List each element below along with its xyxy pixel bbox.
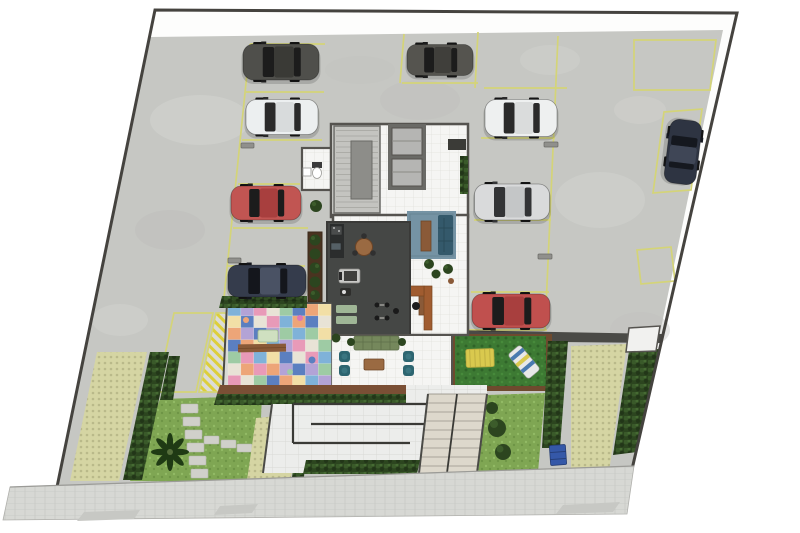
kids-table (258, 330, 278, 342)
car-mirror (261, 80, 266, 83)
exercise-bike (340, 288, 351, 296)
sink (303, 168, 311, 176)
lobby-sofa (438, 215, 453, 255)
white-gate-panel (626, 326, 660, 352)
playroom-tile (318, 352, 331, 364)
site-plan-rendering (0, 0, 800, 533)
car-rear-glass (294, 103, 300, 131)
car-silver-right (473, 182, 551, 225)
car-darkgray-top-mid (406, 42, 475, 80)
playroom-tile (318, 328, 331, 340)
car-mirror (263, 135, 268, 138)
car-rear-glass (533, 103, 539, 133)
playroom-tile (305, 340, 318, 352)
car-mirror (423, 76, 428, 79)
car-red-right (471, 292, 552, 333)
kitchen-sink (331, 243, 341, 250)
car-windshield (504, 103, 515, 134)
gym-mat-2 (336, 316, 357, 324)
car-mirror (423, 42, 428, 45)
green-sofa (354, 336, 399, 350)
car-roof (274, 47, 294, 78)
stove (331, 226, 342, 235)
car-rear-glass (278, 190, 284, 217)
car-roof (434, 47, 451, 73)
toilet (312, 162, 322, 179)
car-rear-glass (524, 298, 531, 325)
playroom-tile (241, 352, 254, 364)
playroom-tile (241, 328, 254, 340)
work-desk-vertical (424, 286, 432, 330)
gym-mat-1 (336, 305, 357, 313)
dumpster (549, 444, 566, 465)
hall-plant-leaf (312, 202, 316, 206)
car-roof (260, 189, 278, 218)
car-red-left (230, 184, 303, 225)
car-mirror (263, 97, 268, 100)
playroom-tile (228, 352, 241, 364)
desk-chair (412, 302, 420, 310)
car-windshield (249, 189, 260, 217)
car-mirror (491, 328, 496, 331)
playroom-tile (267, 352, 280, 364)
car-roof (505, 187, 525, 218)
car-mirror (502, 137, 507, 140)
hedge-strip-sidewalk (303, 460, 420, 474)
coffee-table (364, 359, 384, 370)
car-roof (515, 102, 534, 134)
car-mirror (261, 42, 266, 45)
car-mirror (247, 263, 252, 266)
elevator-bank (388, 124, 426, 190)
palm-tree (151, 433, 189, 471)
car-mirror (493, 220, 498, 223)
car-roof (276, 102, 295, 132)
playroom-tile (293, 340, 306, 352)
car-rear-glass (280, 269, 287, 294)
car-windshield (265, 103, 276, 132)
playroom-tile (228, 364, 241, 376)
stair-core (334, 126, 380, 213)
car-roof (260, 268, 280, 295)
car-darkgray-left-top (242, 42, 321, 85)
car-mirror (502, 97, 507, 100)
car-navy-left (227, 263, 308, 302)
car-roof (668, 145, 697, 165)
playroom-tile (293, 364, 306, 376)
car-rear-glass (451, 48, 457, 72)
car-windshield (263, 47, 274, 77)
playroom-tile (254, 364, 267, 376)
playroom-tile (305, 328, 318, 340)
car-roof (504, 297, 524, 326)
playroom-tile (293, 352, 306, 364)
playroom-tile (267, 316, 280, 328)
playroom-tile (318, 340, 331, 352)
stove-burner (338, 230, 340, 232)
car-mirror (248, 220, 253, 223)
car-windshield (494, 187, 505, 217)
floorplan-stage (0, 0, 800, 533)
yellow-slat-bench (466, 349, 495, 368)
wood-deck-strip (217, 385, 410, 394)
playroom-tile (228, 316, 241, 328)
playroom-tile (241, 364, 254, 376)
entry-console (448, 139, 466, 150)
playroom-tile (254, 316, 267, 328)
sofa-plant-right (398, 338, 406, 346)
playroom-bench (238, 344, 286, 353)
hall-plant (310, 200, 322, 212)
playroom-tile (305, 316, 318, 328)
playroom-tile (305, 364, 318, 376)
playroom-tile (318, 316, 331, 328)
playroom-tile (293, 328, 306, 340)
playroom-tile (254, 352, 267, 364)
treadmill (339, 269, 360, 283)
car-windshield (492, 297, 504, 325)
planter-hedge-building-right (460, 156, 468, 194)
playroom-tile (280, 352, 293, 364)
car-mirror (493, 182, 498, 185)
wood-stool (448, 278, 454, 284)
playroom-tile (318, 304, 331, 316)
car-mirror (248, 184, 253, 187)
playroom (223, 303, 331, 387)
car-white-left (245, 97, 320, 139)
car-rear-glass (294, 48, 301, 77)
car-mirror (491, 292, 496, 295)
playroom-tile (318, 364, 331, 376)
car-white-right (484, 97, 559, 141)
car-rear-glass (525, 188, 532, 217)
lobby-bench (421, 221, 431, 251)
playroom-tile (280, 316, 293, 328)
playroom-tile (305, 304, 318, 316)
stair-landing (351, 141, 372, 199)
car-windshield (248, 268, 260, 294)
car-mirror (247, 297, 252, 300)
car-windshield (424, 48, 434, 73)
playroom-tile (267, 364, 280, 376)
playroom-tile (280, 328, 293, 340)
lounge-plant-pot (332, 334, 341, 343)
sofa-plant-left (347, 338, 355, 346)
playroom-tile (228, 328, 241, 340)
stove-burner (333, 227, 335, 229)
entrance-stairs (419, 394, 487, 473)
